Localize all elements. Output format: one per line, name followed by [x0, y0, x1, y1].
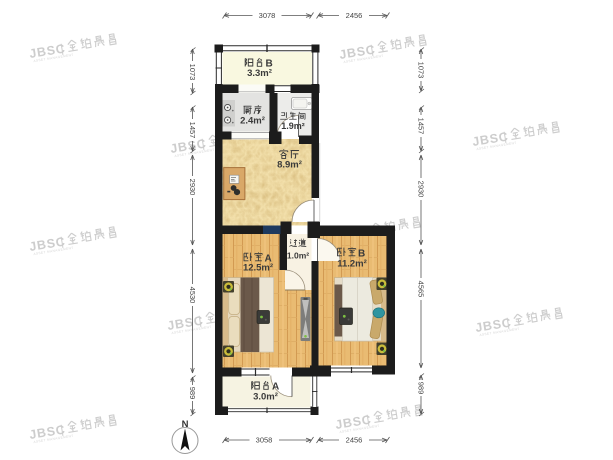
svg-text:989: 989: [417, 382, 426, 395]
svg-text:3.0m²: 3.0m²: [253, 392, 278, 403]
svg-text:2.4m²: 2.4m²: [240, 116, 265, 127]
svg-text:3078: 3078: [259, 11, 276, 20]
svg-text:3058: 3058: [256, 436, 273, 445]
svg-text:1073: 1073: [188, 64, 197, 81]
svg-text:2930: 2930: [188, 179, 197, 196]
svg-text:1073: 1073: [417, 62, 426, 79]
svg-text:2456: 2456: [346, 436, 363, 445]
svg-text:4565: 4565: [417, 281, 426, 298]
svg-text:2456: 2456: [346, 11, 363, 20]
svg-text:989: 989: [188, 387, 197, 400]
svg-text:12.5m²: 12.5m²: [243, 263, 273, 274]
svg-text:11.2m²: 11.2m²: [337, 259, 367, 270]
svg-text:1457: 1457: [417, 118, 426, 135]
svg-text:1.0m²: 1.0m²: [287, 251, 309, 261]
svg-text:8.9m²: 8.9m²: [277, 160, 302, 171]
svg-text:1.9m²: 1.9m²: [281, 121, 305, 131]
svg-text:3.3m²: 3.3m²: [247, 68, 272, 79]
svg-text:4530: 4530: [188, 287, 197, 304]
svg-text:1457: 1457: [188, 122, 197, 139]
svg-text:2930: 2930: [417, 181, 426, 198]
